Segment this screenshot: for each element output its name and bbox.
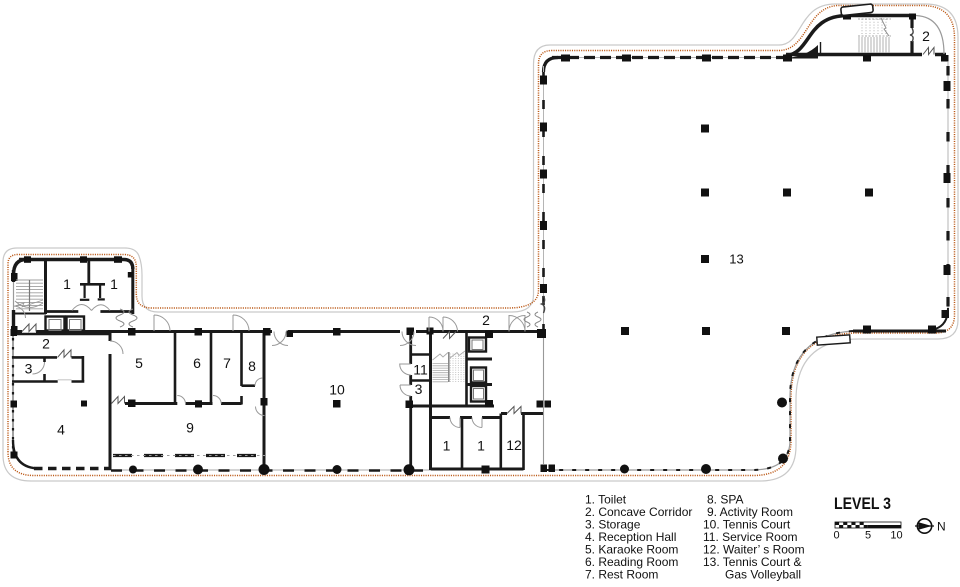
svg-text:1: 1 — [477, 438, 485, 454]
svg-text:6: 6 — [193, 355, 201, 371]
svg-text:5: 5 — [135, 355, 143, 371]
svg-text:3: 3 — [415, 381, 423, 397]
svg-text:2: 2 — [922, 28, 930, 44]
svg-text:1: 1 — [63, 276, 71, 292]
svg-text:9: 9 — [186, 420, 194, 436]
svg-text:3: 3 — [25, 361, 33, 377]
svg-text:7: 7 — [223, 355, 231, 371]
svg-text:LEVEL 3: LEVEL 3 — [834, 494, 891, 513]
svg-text:N: N — [937, 520, 946, 534]
svg-text:2: 2 — [42, 336, 50, 352]
svg-text:11: 11 — [413, 362, 428, 378]
svg-text:8: 8 — [248, 358, 256, 374]
svg-text:0: 0 — [833, 530, 839, 542]
svg-text:10: 10 — [890, 530, 902, 542]
svg-text:2: 2 — [482, 312, 490, 328]
svg-text:1: 1 — [443, 438, 451, 454]
svg-text:7. Rest Room: 7. Rest Room — [585, 568, 658, 582]
svg-text:12: 12 — [506, 437, 522, 453]
svg-text:13: 13 — [729, 252, 743, 267]
svg-text:10: 10 — [329, 382, 345, 398]
svg-text:1: 1 — [110, 276, 118, 292]
svg-text:Gas Volleyball: Gas Volleyball — [725, 568, 801, 582]
svg-text:5: 5 — [865, 530, 871, 542]
svg-text:4: 4 — [57, 422, 65, 438]
